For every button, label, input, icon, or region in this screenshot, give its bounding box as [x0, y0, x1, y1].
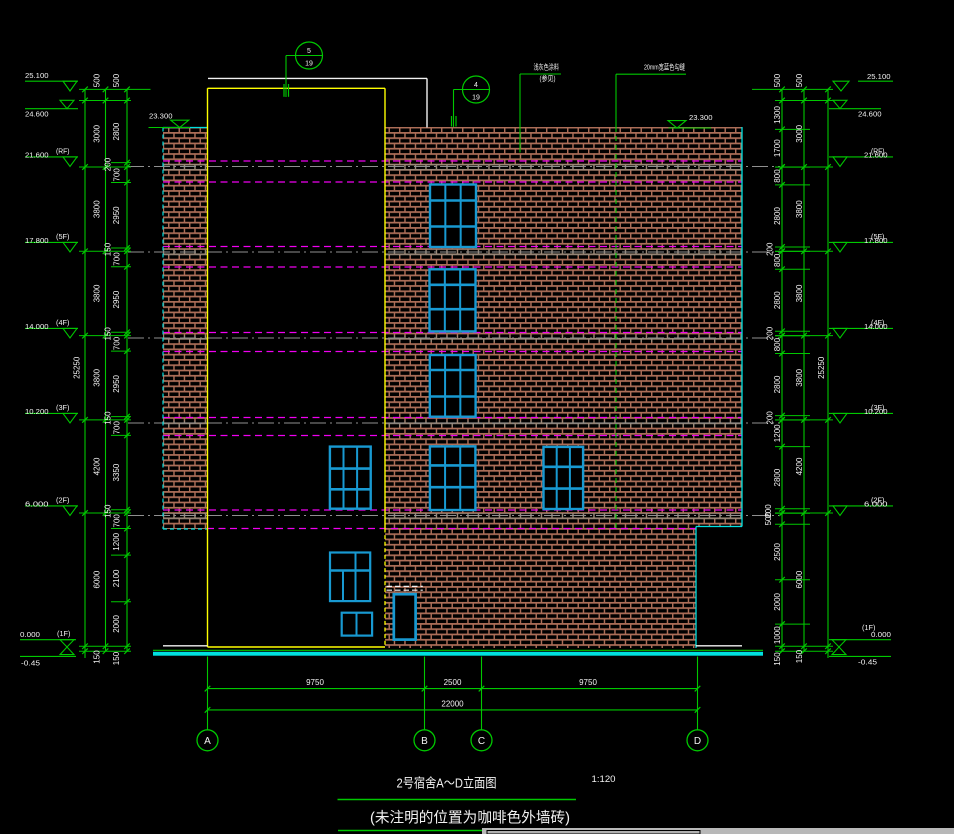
svg-text:500: 500 [764, 511, 773, 525]
svg-text:500: 500 [773, 73, 782, 87]
svg-text:150: 150 [104, 504, 113, 518]
svg-text:2800: 2800 [773, 375, 782, 393]
svg-text:800: 800 [773, 337, 782, 351]
svg-text:22000: 22000 [441, 700, 464, 709]
svg-text:4200: 4200 [93, 457, 102, 475]
svg-text:(RF): (RF) [871, 148, 885, 155]
svg-text:(1F): (1F) [57, 631, 71, 638]
svg-text:C: C [478, 736, 485, 747]
svg-text:2800: 2800 [112, 122, 121, 140]
svg-text:23.300: 23.300 [149, 112, 173, 121]
svg-text:(未注明的位置为咖啡色外墙砖): (未注明的位置为咖啡色外墙砖) [370, 810, 570, 827]
svg-text:3350: 3350 [112, 463, 121, 481]
svg-text:21.600: 21.600 [25, 150, 49, 159]
svg-text:6000: 6000 [795, 570, 804, 588]
svg-text:3800: 3800 [795, 368, 804, 386]
svg-text:14.000: 14.000 [25, 322, 49, 331]
svg-text:B: B [421, 736, 428, 747]
svg-text:150: 150 [104, 242, 113, 256]
svg-text:23.300: 23.300 [689, 113, 713, 122]
svg-text:1700: 1700 [773, 139, 782, 157]
svg-text:500: 500 [112, 73, 121, 87]
svg-text:5: 5 [307, 48, 311, 55]
svg-text:1:120: 1:120 [592, 774, 616, 785]
svg-text:17.800: 17.800 [25, 236, 49, 245]
svg-text:800: 800 [773, 253, 782, 267]
svg-text:3000: 3000 [93, 124, 102, 142]
svg-text:24.600: 24.600 [858, 110, 882, 119]
svg-text:(2F): (2F) [871, 497, 885, 504]
svg-text:(2F): (2F) [56, 497, 70, 504]
svg-text:700: 700 [113, 514, 122, 528]
svg-text:700: 700 [113, 168, 122, 182]
svg-text:150: 150 [104, 411, 113, 425]
svg-text:200: 200 [766, 411, 775, 425]
svg-text:3800: 3800 [795, 200, 804, 218]
svg-text:10.200: 10.200 [25, 407, 49, 416]
svg-text:150: 150 [773, 652, 782, 666]
svg-text:1200: 1200 [112, 532, 121, 550]
svg-text:(1F): (1F) [862, 625, 876, 632]
svg-text:(3F): (3F) [56, 405, 70, 412]
svg-text:800: 800 [773, 169, 782, 183]
svg-text:150: 150 [104, 327, 113, 341]
svg-text:19: 19 [305, 61, 313, 68]
svg-text:150: 150 [112, 651, 121, 665]
svg-text:A: A [204, 736, 211, 747]
svg-text:3000: 3000 [795, 124, 804, 142]
svg-text:(3F): (3F) [871, 405, 885, 412]
svg-text:9750: 9750 [579, 678, 597, 687]
svg-text:2500: 2500 [444, 678, 462, 687]
svg-text:3800: 3800 [93, 284, 102, 302]
svg-text:150: 150 [93, 650, 102, 664]
svg-text:1200: 1200 [773, 424, 782, 442]
svg-text:2800: 2800 [773, 291, 782, 309]
svg-text:(5F): (5F) [56, 234, 70, 241]
svg-text:(4F): (4F) [871, 320, 885, 327]
svg-text:0.000: 0.000 [20, 630, 40, 639]
svg-text:1300: 1300 [773, 106, 782, 124]
svg-text:700: 700 [113, 252, 122, 266]
svg-text:4: 4 [474, 82, 478, 89]
svg-text:(4F): (4F) [56, 320, 70, 327]
svg-text:25250: 25250 [817, 356, 826, 379]
svg-text:25.100: 25.100 [867, 72, 891, 81]
svg-text:-0.45: -0.45 [858, 658, 877, 667]
svg-text:1000: 1000 [773, 626, 782, 644]
svg-text:500: 500 [93, 73, 102, 87]
svg-text:2950: 2950 [112, 206, 121, 224]
svg-text:3800: 3800 [93, 200, 102, 218]
svg-text:2000: 2000 [773, 592, 782, 610]
svg-text:(RF): (RF) [56, 148, 70, 155]
svg-text:700: 700 [113, 336, 122, 350]
svg-text:D: D [694, 736, 701, 747]
svg-text:2800: 2800 [773, 207, 782, 225]
svg-text:20mm宽蓝色勾缝: 20mm宽蓝色勾缝 [644, 62, 685, 72]
svg-text:25.100: 25.100 [25, 71, 49, 80]
svg-text:700: 700 [113, 420, 122, 434]
svg-text:200: 200 [104, 157, 113, 171]
svg-text:6000: 6000 [93, 570, 102, 588]
svg-text:-0.45: -0.45 [21, 659, 40, 668]
svg-text:2950: 2950 [112, 290, 121, 308]
svg-text:4200: 4200 [795, 457, 804, 475]
svg-text:6.000: 6.000 [25, 499, 49, 508]
svg-text:500: 500 [795, 73, 804, 87]
svg-text:浅灰色涂料: 浅灰色涂料 [534, 62, 560, 72]
svg-text:2800: 2800 [773, 468, 782, 486]
svg-text:9750: 9750 [306, 678, 324, 687]
svg-text:2号宿舍A～D立面图: 2号宿舍A～D立面图 [397, 776, 497, 791]
svg-text:150: 150 [795, 649, 804, 663]
svg-text:19: 19 [472, 95, 480, 102]
svg-text:(5F): (5F) [871, 234, 885, 241]
svg-text:2000: 2000 [112, 614, 121, 632]
svg-text:2100: 2100 [112, 569, 121, 587]
svg-text:2500: 2500 [773, 543, 782, 561]
svg-text:3800: 3800 [795, 284, 804, 302]
svg-text:24.600: 24.600 [25, 110, 49, 119]
svg-text:25250: 25250 [73, 356, 82, 379]
svg-text:3800: 3800 [93, 368, 102, 386]
svg-text:2950: 2950 [112, 374, 121, 392]
